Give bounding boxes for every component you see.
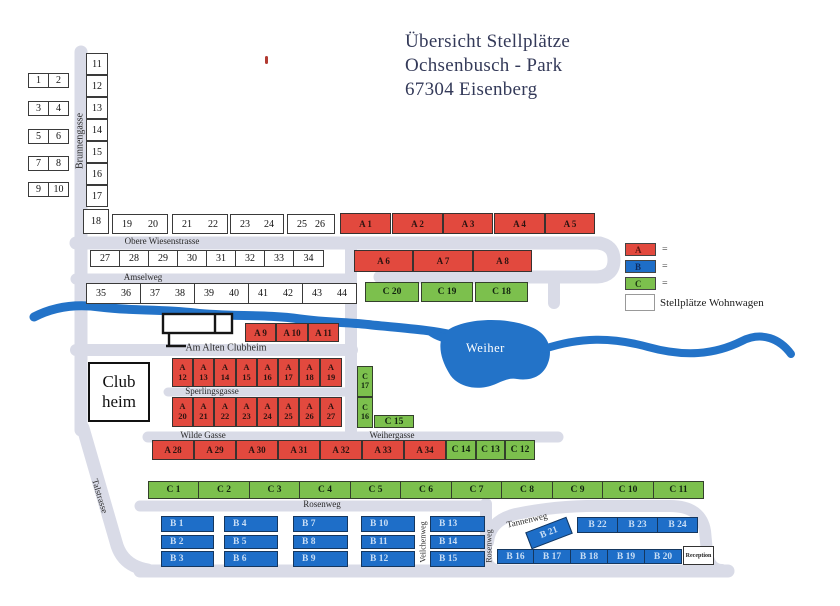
- plot-31: 31: [206, 250, 236, 267]
- plot-b6: B 6: [224, 551, 278, 567]
- plot-number: 44: [337, 288, 347, 299]
- plot-a8: A 8: [473, 250, 532, 272]
- legend-swatch-b: B: [625, 260, 656, 273]
- plot-b16: B 16: [497, 549, 534, 564]
- plot-a11: A 11: [308, 323, 339, 342]
- plot-number: 42: [283, 288, 293, 299]
- plot-number: 25: [297, 219, 307, 230]
- plot-39-40: 3940: [194, 283, 249, 304]
- plot-c16: C16: [357, 397, 373, 428]
- plot-a12: A12: [172, 358, 193, 387]
- street-label-obere-wiesenstrasse: Obere Wiesenstrasse: [125, 236, 200, 246]
- plot-10: 10: [48, 182, 69, 197]
- plot-9: 9: [28, 182, 49, 197]
- plot-label-line: 23: [242, 412, 251, 422]
- legend-white-swatch: [625, 294, 655, 311]
- plot-number: 20: [148, 219, 158, 230]
- river-west: [34, 306, 452, 335]
- plot-label-line: 19: [327, 373, 336, 383]
- plot-16: 16: [86, 163, 108, 185]
- plot-41-42: 4142: [248, 283, 303, 304]
- plot-a27: A27: [320, 397, 342, 427]
- street-label-wilde-gasse: Wilde Gasse: [180, 430, 225, 440]
- plot-c1: C 1: [148, 481, 199, 499]
- plot-c11: C 11: [653, 481, 704, 499]
- street-label-amselweg: Amselweg: [124, 272, 163, 282]
- plot-label-line: 12: [178, 373, 187, 383]
- plot-number: 38: [175, 288, 185, 299]
- legend-color-items: A=B=C=: [625, 243, 764, 290]
- plot-label-line: 22: [221, 412, 230, 422]
- plot-c12: C 12: [505, 440, 535, 460]
- plot-label-line: 25: [284, 412, 293, 422]
- plot-a2: A 2: [392, 213, 443, 234]
- street-label-veilchenweg: Veilchenweg: [419, 521, 428, 562]
- plot-label-line: 17: [284, 373, 293, 383]
- plot-a3: A 3: [443, 213, 493, 234]
- title-line-3: 67304 Eisenberg: [405, 78, 570, 102]
- plot-34: 34: [293, 250, 324, 267]
- plot-b17: B 17: [533, 549, 571, 564]
- plot-number: 43: [312, 288, 322, 299]
- plot-a5: A 5: [545, 213, 595, 234]
- plot-c3: C 3: [249, 481, 300, 499]
- plot-b14: B 14: [430, 535, 485, 549]
- legend-equals: =: [662, 278, 668, 289]
- plot-c9: C 9: [552, 481, 603, 499]
- plot-c7: C 7: [451, 481, 502, 499]
- plot-a9: A 9: [245, 323, 276, 342]
- plot-label-line: 16: [263, 373, 272, 383]
- plot-number: 35: [96, 288, 106, 299]
- plot-number: 37: [150, 288, 160, 299]
- plot-32: 32: [235, 250, 265, 267]
- plot-a10: A 10: [276, 323, 308, 342]
- plot-b23: B 23: [617, 517, 658, 533]
- plot-28: 28: [119, 250, 149, 267]
- river-east: [544, 337, 791, 354]
- plot-number: 26: [315, 219, 325, 230]
- plot-number: 21: [182, 219, 192, 230]
- plot-c17: C17: [357, 366, 373, 397]
- plot-c2: C 2: [198, 481, 250, 499]
- plot-c14: C 14: [446, 440, 476, 460]
- plot-4: 4: [48, 101, 69, 116]
- street-label-brunnengasse: Brunnengasse: [75, 113, 86, 169]
- clubhouse-line-1: Club: [102, 372, 135, 392]
- plot-label-line: 18: [305, 373, 314, 383]
- plot-c13: C 13: [476, 440, 505, 460]
- campsite-map: Übersicht Stellplätze Ochsenbusch - Park…: [0, 0, 840, 606]
- plot-number: 40: [229, 288, 239, 299]
- street-label-rosenweg: Rosenweg: [303, 499, 341, 509]
- plot-14: 14: [86, 119, 108, 141]
- plot-number: 19: [122, 219, 132, 230]
- plot-number: 23: [240, 219, 250, 230]
- lake-label: Weiher: [466, 341, 505, 356]
- plot-b11: B 11: [361, 535, 415, 549]
- legend-item-b: B=: [625, 260, 764, 273]
- title-line-1: Übersicht Stellplätze: [405, 30, 570, 54]
- legend-item-a: A=: [625, 243, 764, 256]
- plot-label-line: 14: [221, 373, 230, 383]
- plot-a6: A 6: [354, 250, 413, 272]
- plot-a15: A15: [236, 358, 257, 387]
- plot-b5: B 5: [224, 535, 278, 549]
- plot-43-44: 4344: [302, 283, 357, 304]
- plot-c8: C 8: [501, 481, 553, 499]
- plot-a19: A19: [320, 358, 342, 387]
- plot-b8: B 8: [293, 535, 348, 549]
- plot-a24: A24: [257, 397, 278, 427]
- plot-b9: B 9: [293, 551, 348, 567]
- plot-6: 6: [48, 129, 69, 144]
- street-label-rosenweg-vertical: Rosenweg: [485, 529, 494, 562]
- plot-a4: A 4: [494, 213, 545, 234]
- street-label-sperlingsgasse: Sperlingsgasse: [185, 386, 239, 396]
- plot-label-line: 20: [178, 412, 187, 422]
- plot-b13: B 13: [430, 516, 485, 532]
- plot-19-20: 1920: [112, 214, 168, 234]
- plot-b24: B 24: [657, 517, 698, 533]
- plot-18: 18: [83, 209, 109, 234]
- plot-a18: A18: [299, 358, 320, 387]
- plot-7: 7: [28, 156, 49, 171]
- plot-b22: B 22: [577, 517, 618, 533]
- plot-label-line: 26: [305, 412, 314, 422]
- plot-30: 30: [177, 250, 207, 267]
- plot-23-24: 2324: [230, 214, 284, 234]
- legend-white-label: Stellplätze Wohnwagen: [660, 297, 764, 309]
- plot-c18: C 18: [475, 282, 528, 302]
- title-line-2: Ochsenbusch - Park: [405, 54, 570, 78]
- plot-label-line: 16: [361, 413, 369, 422]
- plot-c19: C 19: [421, 282, 473, 302]
- plot-17: 17: [86, 185, 108, 207]
- plot-a16: A16: [257, 358, 278, 387]
- plot-a30: A 30: [236, 440, 278, 460]
- plot-label-line: 17: [361, 382, 369, 391]
- map-title: Übersicht Stellplätze Ochsenbusch - Park…: [405, 30, 570, 102]
- plot-c6: C 6: [400, 481, 452, 499]
- plot-13: 13: [86, 97, 108, 119]
- plot-1: 1: [28, 73, 49, 88]
- red-speck: [265, 56, 268, 64]
- plot-29: 29: [148, 250, 178, 267]
- plot-b15: B 15: [430, 551, 485, 567]
- plot-c15: C 15: [374, 415, 414, 428]
- plot-a20: A20: [172, 397, 193, 427]
- plot-15: 15: [86, 141, 108, 163]
- plot-label-line: 24: [263, 412, 272, 422]
- plot-35-36: 3536: [86, 283, 141, 304]
- street-label-am-alten-clubheim: Am Alten Clubheim: [185, 343, 266, 354]
- plot-b20: B 20: [644, 549, 682, 564]
- reception-building: Reception: [683, 546, 714, 565]
- legend-equals: =: [662, 261, 668, 272]
- plot-a32: A 32: [320, 440, 362, 460]
- plot-label-line: 13: [199, 373, 208, 383]
- plot-12: 12: [86, 75, 108, 97]
- plot-21-22: 2122: [172, 214, 228, 234]
- plot-a25: A25: [278, 397, 299, 427]
- plot-a29: A 29: [194, 440, 236, 460]
- legend: A=B=C= Stellplätze Wohnwagen: [625, 243, 764, 311]
- plot-c5: C 5: [350, 481, 401, 499]
- plot-25-26: 2526: [287, 214, 335, 234]
- plot-label-line: 21: [199, 412, 208, 422]
- legend-equals: =: [662, 244, 668, 255]
- plot-a22: A22: [214, 397, 236, 427]
- plot-b1: B 1: [161, 516, 214, 532]
- plot-b12: B 12: [361, 551, 415, 567]
- plot-b2: B 2: [161, 535, 214, 549]
- plot-37-38: 3738: [140, 283, 195, 304]
- plot-a33: A 33: [362, 440, 404, 460]
- road-talstrasse: [83, 428, 148, 570]
- plot-a17: A17: [278, 358, 299, 387]
- plot-a26: A26: [299, 397, 320, 427]
- clubhouse: Club heim: [88, 362, 150, 422]
- plot-a34: A 34: [404, 440, 446, 460]
- plot-c4: C 4: [299, 481, 351, 499]
- plot-b18: B 18: [570, 549, 608, 564]
- plot-a13: A13: [193, 358, 214, 387]
- plot-a31: A 31: [278, 440, 320, 460]
- plot-label-line: 27: [327, 412, 336, 422]
- plot-c10: C 10: [602, 481, 654, 499]
- legend-item-c: C=: [625, 277, 764, 290]
- plot-11: 11: [86, 53, 108, 75]
- plot-number: 36: [121, 288, 131, 299]
- plot-a7: A 7: [413, 250, 473, 272]
- plot-27: 27: [90, 250, 120, 267]
- plot-a21: A21: [193, 397, 214, 427]
- clubhouse-line-2: heim: [102, 392, 136, 412]
- plot-b19: B 19: [607, 549, 645, 564]
- plot-a23: A23: [236, 397, 257, 427]
- legend-swatch-a: A: [625, 243, 656, 256]
- legend-white-row: Stellplätze Wohnwagen: [625, 294, 764, 311]
- legend-swatch-c: C: [625, 277, 656, 290]
- plot-5: 5: [28, 129, 49, 144]
- street-label-weihergasse: Weihergasse: [369, 430, 414, 440]
- plot-a28: A 28: [152, 440, 194, 460]
- plot-number: 24: [264, 219, 274, 230]
- plot-number: 22: [208, 219, 218, 230]
- plot-33: 33: [264, 250, 294, 267]
- plot-label-line: 15: [242, 373, 251, 383]
- plot-c20: C 20: [365, 282, 419, 302]
- plot-3: 3: [28, 101, 49, 116]
- plot-8: 8: [48, 156, 69, 171]
- plot-number: 39: [204, 288, 214, 299]
- plot-b7: B 7: [293, 516, 348, 532]
- plot-b10: B 10: [361, 516, 415, 532]
- plot-a14: A14: [214, 358, 236, 387]
- plot-number: 41: [258, 288, 268, 299]
- plot-b3: B 3: [161, 551, 214, 567]
- plot-b4: B 4: [224, 516, 278, 532]
- plot-2: 2: [48, 73, 69, 88]
- plot-a1: A 1: [340, 213, 391, 234]
- footbridge-structure: [163, 314, 232, 333]
